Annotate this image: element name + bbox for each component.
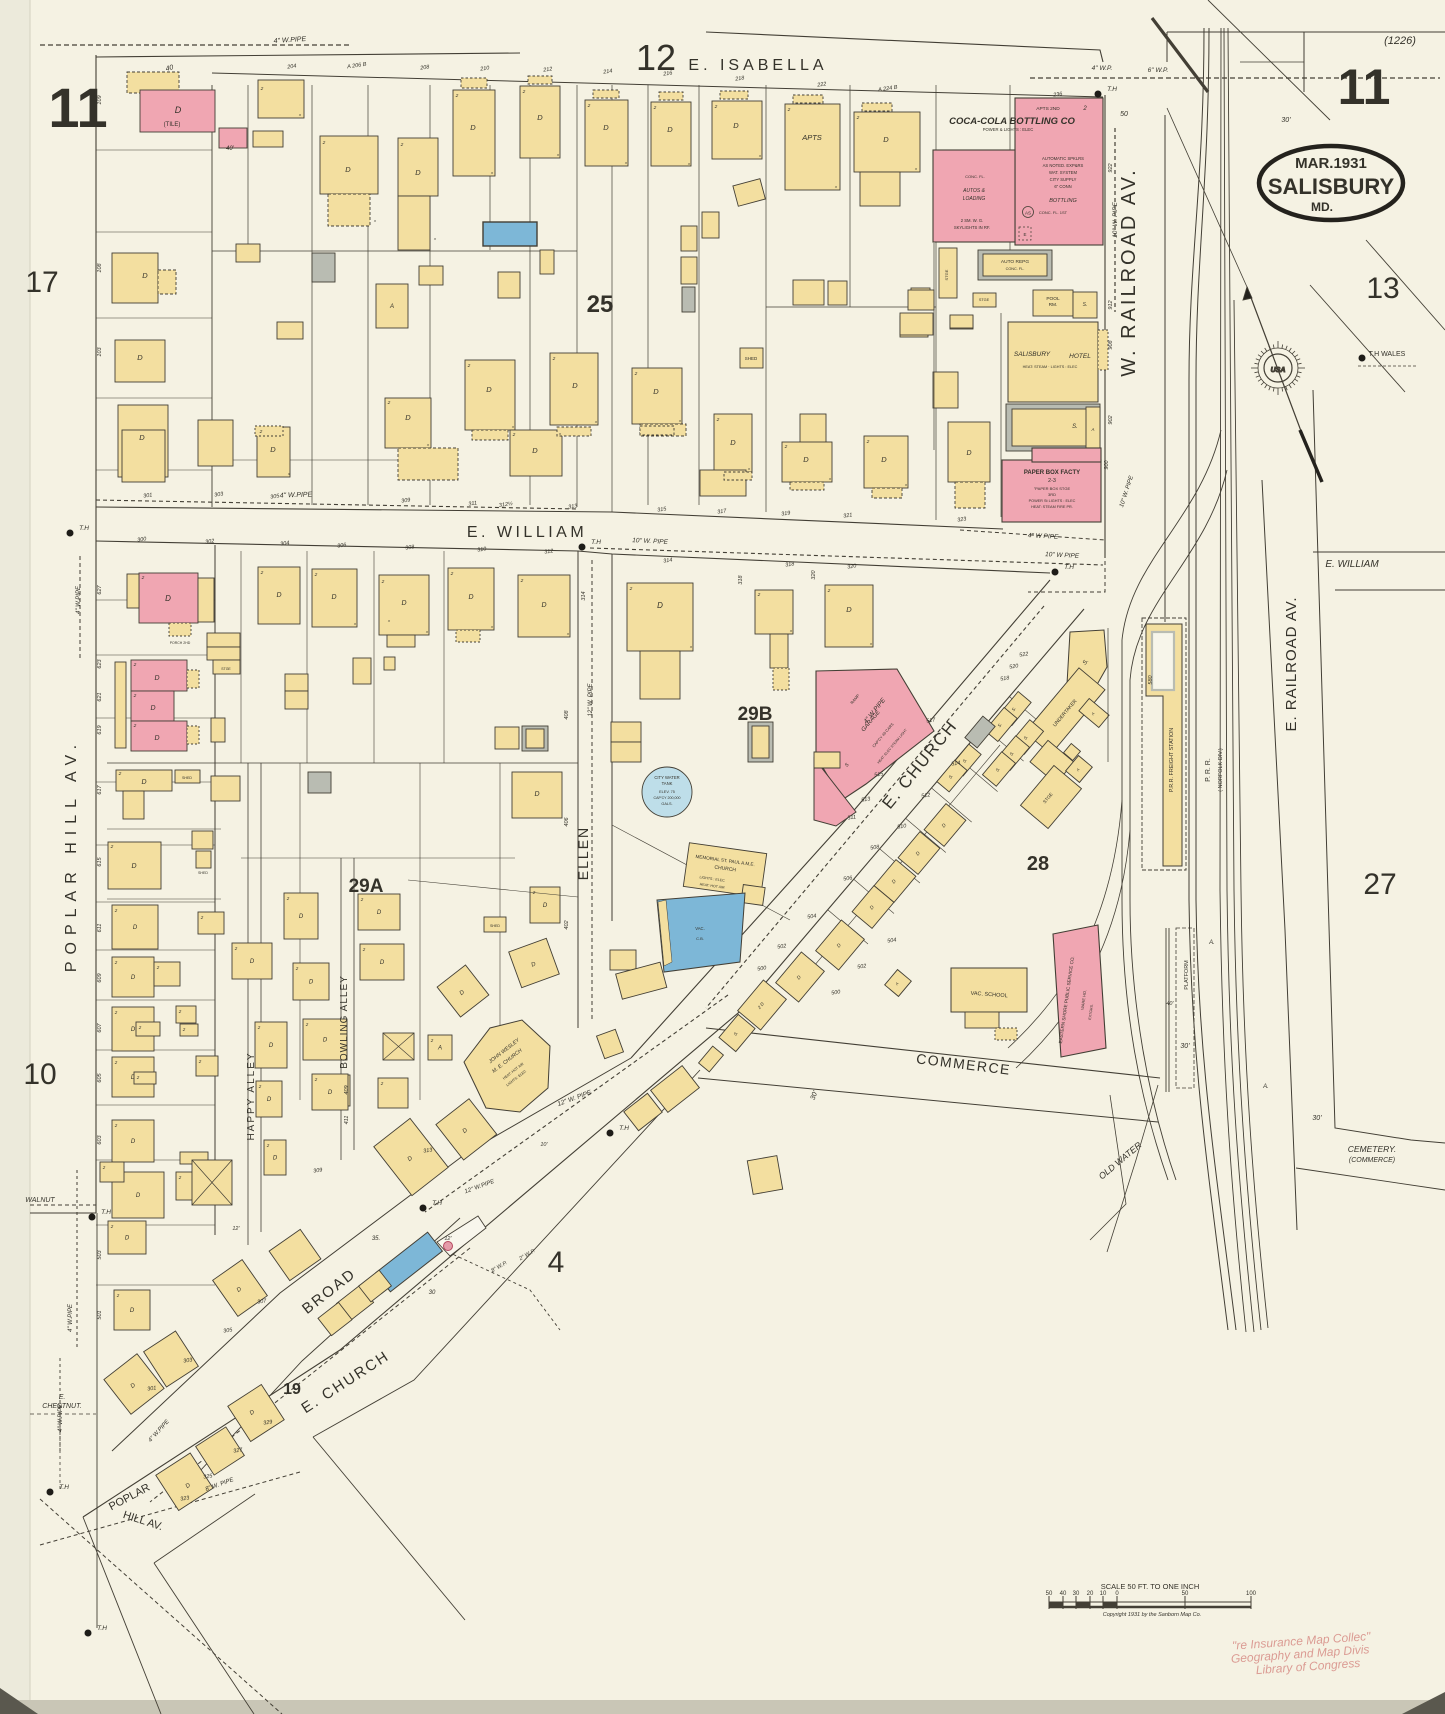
- svg-text:(1226): (1226): [1384, 35, 1416, 47]
- svg-text:T.H: T.H: [97, 1625, 107, 1632]
- svg-text:LOADING: LOADING: [963, 196, 986, 202]
- svg-text:2: 2: [266, 1143, 270, 1148]
- svg-text:411: 411: [344, 1116, 350, 1125]
- svg-text:D: D: [401, 600, 406, 607]
- svg-text:502: 502: [777, 943, 787, 950]
- svg-text:2: 2: [114, 1123, 118, 1128]
- svg-text:28: 28: [1027, 853, 1049, 875]
- svg-text:2: 2: [234, 946, 238, 951]
- svg-text:APTS: APTS: [801, 133, 822, 142]
- svg-text:A.: A.: [1262, 1084, 1269, 1090]
- svg-text:603: 603: [97, 1134, 103, 1144]
- svg-text:(TILE): (TILE): [164, 122, 181, 128]
- svg-text:504: 504: [887, 937, 897, 944]
- svg-text:2: 2: [314, 572, 318, 578]
- svg-text:309: 309: [313, 1167, 323, 1174]
- svg-text:30: 30: [1073, 1591, 1080, 1597]
- svg-text:E.: E.: [59, 1394, 66, 1401]
- svg-text:D: D: [250, 959, 255, 965]
- svg-text:2: 2: [716, 417, 720, 423]
- svg-text:T.H: T.H: [1064, 564, 1074, 571]
- svg-text:109: 109: [97, 95, 103, 104]
- svg-text:STGE: STGE: [944, 269, 949, 280]
- svg-text:580: 580: [1148, 674, 1154, 684]
- svg-text:POOL: POOL: [1046, 296, 1060, 302]
- svg-text:S.: S.: [1072, 424, 1078, 430]
- svg-text:2: 2: [1082, 106, 1087, 112]
- svg-text:406: 406: [564, 816, 570, 826]
- svg-text:12’: 12’: [232, 1226, 240, 1232]
- svg-text:2: 2: [381, 579, 385, 585]
- svg-text:A.: A.: [1208, 940, 1215, 946]
- svg-text:D: D: [328, 1090, 333, 1096]
- svg-text:D: D: [377, 910, 382, 916]
- svg-text:4" W.PIPE: 4" W.PIPE: [76, 585, 82, 614]
- svg-text:D: D: [730, 438, 736, 447]
- svg-text:SCALE 50 FT. TO ONE INCH: SCALE 50 FT. TO ONE INCH: [1101, 1582, 1200, 1591]
- svg-text:E: E: [1023, 232, 1026, 237]
- svg-text:318: 318: [738, 574, 744, 584]
- svg-text:50: 50: [1120, 111, 1128, 118]
- svg-text:HAPPY ALLEY: HAPPY ALLEY: [246, 1051, 257, 1140]
- svg-text:502: 502: [857, 963, 867, 970]
- svg-text:12" W. PIPE: 12" W. PIPE: [588, 683, 594, 717]
- svg-text:40’: 40’: [226, 146, 235, 152]
- svg-text:D: D: [125, 1236, 130, 1242]
- svg-text:408: 408: [564, 709, 570, 719]
- svg-text:4: 4: [548, 1246, 565, 1279]
- svg-text:6" W.P.: 6" W.P.: [1148, 67, 1169, 74]
- svg-text:2: 2: [116, 1293, 120, 1298]
- svg-text:POWER & LIGHTS : ELEC: POWER & LIGHTS : ELEC: [983, 127, 1034, 132]
- svg-text:908: 908: [1108, 339, 1114, 349]
- svg-text:617: 617: [97, 784, 103, 794]
- svg-text:50: 50: [1182, 1591, 1189, 1597]
- svg-text:2: 2: [430, 1038, 434, 1043]
- svg-text:D: D: [133, 925, 138, 931]
- svg-text:902: 902: [1108, 415, 1114, 424]
- svg-text:2: 2: [102, 1165, 106, 1170]
- svg-text:2: 2: [200, 915, 204, 920]
- svg-text:619: 619: [97, 725, 103, 734]
- svg-text:2 SM. W. G.: 2 SM. W. G.: [961, 218, 984, 223]
- svg-text:D: D: [966, 450, 971, 457]
- svg-text:T.H: T.H: [79, 525, 89, 532]
- svg-text:D: D: [846, 605, 852, 614]
- svg-text:D: D: [534, 791, 539, 798]
- svg-text:2: 2: [866, 439, 870, 445]
- svg-text:VAC.: VAC.: [695, 926, 704, 931]
- svg-text:D: D: [154, 735, 159, 742]
- svg-text:D: D: [468, 594, 473, 601]
- svg-text:2: 2: [450, 571, 454, 577]
- svg-text:D: D: [572, 381, 578, 390]
- svg-text:CONC. FL.: CONC. FL.: [1006, 267, 1025, 271]
- svg-text:CONC. FL. 1ST: CONC. FL. 1ST: [1039, 210, 1068, 215]
- svg-text:2: 2: [118, 771, 122, 777]
- svg-text:A: A: [389, 304, 394, 310]
- svg-text:SALISBURY: SALISBURY: [1268, 174, 1395, 199]
- svg-text:301: 301: [143, 492, 153, 499]
- svg-text:D: D: [267, 1097, 272, 1103]
- svg-text:COCA-COLA BOTTLING CO: COCA-COLA BOTTLING CO: [949, 116, 1075, 127]
- svg-text:P. R. R.: P. R. R.: [1205, 758, 1212, 782]
- svg-text:605: 605: [97, 1072, 103, 1082]
- svg-text:20: 20: [1087, 1591, 1094, 1597]
- svg-text:2-3: 2-3: [1048, 478, 1056, 484]
- svg-text:SHED: SHED: [745, 356, 758, 361]
- svg-text:HOTEL: HOTEL: [1069, 353, 1091, 360]
- svg-text:TANK: TANK: [662, 781, 673, 786]
- svg-text:RM.: RM.: [1049, 302, 1058, 308]
- svg-text:D: D: [276, 592, 281, 599]
- svg-text:29B: 29B: [738, 704, 773, 725]
- svg-text:D: D: [299, 914, 304, 920]
- svg-text:11: 11: [48, 76, 107, 139]
- svg-text:2: 2: [260, 570, 264, 576]
- svg-text:40: 40: [1060, 1591, 1067, 1597]
- svg-text:2: 2: [178, 1175, 182, 1180]
- svg-text:2: 2: [286, 896, 290, 901]
- svg-text:10’: 10’: [540, 1142, 548, 1148]
- svg-text:50: 50: [1046, 1591, 1053, 1597]
- svg-text:312: 312: [544, 548, 554, 555]
- svg-text:D: D: [142, 271, 148, 280]
- svg-text:2: 2: [856, 115, 860, 121]
- svg-text:311: 311: [468, 500, 478, 507]
- svg-text:30: 30: [429, 1290, 436, 1296]
- svg-text:2: 2: [362, 947, 366, 952]
- svg-text:623: 623: [97, 658, 103, 668]
- svg-text:511: 511: [847, 814, 857, 821]
- svg-text:2: 2: [305, 1022, 309, 1027]
- svg-text:2: 2: [634, 371, 638, 377]
- svg-text:2: 2: [114, 908, 118, 913]
- svg-text:POWER St LIGHTS : ELEC: POWER St LIGHTS : ELEC: [1029, 499, 1076, 503]
- svg-text:D: D: [380, 960, 385, 966]
- svg-text:40’: 40’: [1166, 1001, 1174, 1007]
- svg-text:D: D: [532, 446, 538, 455]
- svg-text:E. WILLIAM: E. WILLIAM: [1325, 559, 1379, 570]
- svg-text:APTS 2ND: APTS 2ND: [1036, 106, 1060, 112]
- svg-text:D: D: [470, 123, 476, 132]
- svg-text:D: D: [331, 594, 336, 601]
- svg-text:2: 2: [784, 444, 788, 450]
- svg-text:2: 2: [757, 592, 761, 598]
- svg-text:T.H WALES: T.H WALES: [1369, 351, 1406, 358]
- svg-text:D: D: [141, 779, 146, 786]
- svg-text:301: 301: [147, 1385, 157, 1392]
- svg-text:621: 621: [97, 692, 103, 701]
- svg-text:STGE: STGE: [221, 667, 231, 671]
- svg-text:2: 2: [110, 844, 114, 850]
- svg-text:2: 2: [141, 575, 145, 581]
- svg-text:2: 2: [380, 1081, 384, 1086]
- svg-text:D: D: [131, 975, 136, 981]
- svg-text:SKYLIGHTS IN RF.: SKYLIGHTS IN RF.: [954, 225, 990, 230]
- svg-text:314: 314: [581, 591, 587, 600]
- svg-text:D: D: [309, 980, 314, 986]
- svg-text:SHED: SHED: [182, 776, 192, 780]
- svg-text:T.H: T.H: [101, 1209, 111, 1216]
- svg-text:2: 2: [653, 105, 657, 111]
- svg-text:504: 504: [807, 913, 817, 920]
- svg-text:13: 13: [1366, 272, 1399, 305]
- svg-text:D: D: [131, 1139, 136, 1145]
- svg-text:12’: 12’: [444, 1236, 452, 1242]
- svg-text:2: 2: [136, 1075, 140, 1080]
- svg-text:501: 501: [97, 1310, 103, 1319]
- svg-text:D: D: [165, 594, 171, 603]
- svg-text:D: D: [139, 433, 145, 442]
- svg-text:D: D: [667, 125, 673, 134]
- svg-text:10: 10: [23, 1058, 56, 1091]
- svg-text:T.H: T.H: [591, 539, 601, 546]
- svg-text:409: 409: [344, 1085, 350, 1094]
- svg-text:2: 2: [156, 965, 160, 970]
- svg-text:D: D: [154, 675, 159, 682]
- svg-text:D: D: [486, 385, 492, 394]
- svg-text:321: 321: [843, 512, 853, 519]
- svg-text:SHED: SHED: [490, 924, 500, 928]
- svg-text:A: A: [1090, 427, 1094, 432]
- svg-text:2: 2: [455, 93, 459, 99]
- svg-text:2: 2: [133, 723, 137, 729]
- svg-text:(COMMERCE): (COMMERCE): [1349, 1157, 1395, 1164]
- svg-text:E. WILLIAM: E. WILLIAM: [467, 524, 587, 541]
- svg-text:19: 19: [283, 1381, 301, 1398]
- svg-text:ELEV. 75: ELEV. 75: [659, 790, 675, 794]
- svg-text:A: A: [437, 1046, 442, 1052]
- svg-text:514: 514: [951, 760, 961, 767]
- svg-text:100: 100: [1246, 1591, 1257, 1597]
- svg-text:4" W.PIPE: 4" W.PIPE: [68, 1303, 74, 1332]
- svg-text:D: D: [653, 387, 659, 396]
- svg-text:30’: 30’: [1180, 1043, 1190, 1050]
- svg-text:D: D: [537, 113, 543, 122]
- svg-text:611: 611: [97, 924, 103, 933]
- svg-text:D: D: [345, 165, 351, 174]
- svg-text:2: 2: [629, 586, 633, 592]
- svg-text:D: D: [130, 1308, 135, 1314]
- svg-text:302: 302: [205, 538, 215, 545]
- svg-text:35.: 35.: [372, 1236, 380, 1242]
- svg-text:PAPER BOX FACTY: PAPER BOX FACTY: [1024, 470, 1080, 476]
- svg-text:CITY WATER: CITY WATER: [654, 775, 679, 780]
- svg-text:T.H: T.H: [432, 1200, 442, 1207]
- svg-text:BOTTLING: BOTTLING: [1049, 198, 1077, 204]
- svg-text:2: 2: [522, 89, 526, 95]
- svg-text:C.B.: C.B.: [696, 936, 704, 941]
- svg-text:2: 2: [182, 1027, 186, 1032]
- svg-text:512: 512: [921, 792, 931, 799]
- svg-text:4" W.PIPE: 4" W.PIPE: [280, 491, 313, 499]
- svg-text:2: 2: [295, 966, 299, 971]
- svg-text:30’: 30’: [1312, 1115, 1322, 1122]
- svg-text:900: 900: [1104, 459, 1110, 469]
- svg-text:E. RAILROAD AV.: E. RAILROAD AV.: [1283, 596, 1300, 731]
- svg-text:314: 314: [663, 557, 673, 564]
- svg-text:6" CONN: 6" CONN: [1054, 184, 1071, 189]
- svg-text:AUTOMATIC SPKLRS: AUTOMATIC SPKLRS: [1042, 156, 1084, 161]
- svg-text:2: 2: [258, 1084, 262, 1089]
- svg-text:HEAT: STEAM FIRE PR.: HEAT: STEAM FIRE PR.: [1031, 505, 1073, 509]
- svg-text:2: 2: [387, 400, 391, 406]
- svg-text:D: D: [137, 353, 143, 362]
- svg-text:319: 319: [781, 510, 791, 517]
- svg-text:D: D: [541, 602, 546, 609]
- svg-text:GALS.: GALS.: [661, 802, 672, 806]
- svg-text:CONC. FL.: CONC. FL.: [965, 174, 985, 179]
- svg-text:D: D: [269, 1043, 274, 1049]
- svg-text:2: 2: [512, 432, 516, 438]
- svg-text:3RD: 3RD: [1048, 492, 1056, 497]
- svg-text:MAR.1931: MAR.1931: [1295, 155, 1367, 172]
- svg-text:PORCH 2HD: PORCH 2HD: [170, 641, 191, 645]
- svg-text:609: 609: [97, 973, 103, 982]
- svg-text:( NORFOLK DIV.): ( NORFOLK DIV.): [1218, 748, 1224, 792]
- svg-text:D: D: [323, 1038, 328, 1044]
- svg-text:10" W. PIPE: 10" W. PIPE: [1112, 202, 1119, 238]
- svg-text:D: D: [270, 445, 276, 454]
- svg-text:2: 2: [314, 1077, 318, 1082]
- svg-text:912: 912: [1108, 300, 1114, 309]
- svg-text:2: 2: [552, 356, 556, 362]
- svg-text:329: 329: [263, 1419, 273, 1426]
- svg-text:2: 2: [260, 86, 264, 92]
- svg-text:25: 25: [587, 291, 614, 318]
- svg-text:17: 17: [25, 266, 58, 299]
- svg-text:304: 304: [280, 540, 290, 547]
- svg-text:D: D: [657, 601, 663, 610]
- svg-text:4" W.P.: 4" W.P.: [1092, 65, 1113, 72]
- svg-text:D: D: [415, 168, 421, 177]
- svg-text:AUTOS &: AUTOS &: [962, 188, 986, 194]
- svg-text:W. RAILROAD AV.: W. RAILROAD AV.: [1118, 167, 1140, 377]
- svg-text:SHED: SHED: [198, 871, 208, 875]
- svg-text:627: 627: [97, 584, 103, 594]
- svg-text:2: 2: [133, 693, 137, 699]
- svg-text:D: D: [803, 455, 809, 464]
- svg-text:2: 2: [322, 140, 326, 146]
- svg-text:D: D: [883, 135, 889, 144]
- svg-text:2: 2: [827, 588, 831, 594]
- svg-text:27: 27: [1363, 868, 1396, 901]
- svg-text:D: D: [175, 105, 182, 115]
- svg-text:2: 2: [257, 1025, 261, 1030]
- svg-text:HEAT: STEAM · LIGHTS : ELEC: HEAT: STEAM · LIGHTS : ELEC: [1023, 365, 1078, 369]
- svg-text:SALISBURY: SALISBURY: [1014, 351, 1051, 358]
- svg-text:T.H: T.H: [1107, 86, 1117, 93]
- svg-text:10: 10: [1100, 1591, 1107, 1597]
- svg-text:MD.: MD.: [1311, 200, 1333, 214]
- svg-text:2: 2: [467, 363, 471, 369]
- svg-text:108: 108: [97, 262, 103, 272]
- svg-text:615: 615: [97, 856, 103, 866]
- svg-text:2: 2: [259, 429, 263, 435]
- svg-text:2: 2: [110, 1224, 114, 1229]
- svg-text:103: 103: [97, 346, 103, 356]
- svg-text:402: 402: [564, 920, 570, 929]
- svg-text:D: D: [136, 1193, 141, 1199]
- svg-text:D: D: [150, 705, 155, 712]
- svg-text:AUTO REPG: AUTO REPG: [1001, 259, 1029, 265]
- svg-text:522: 522: [1019, 651, 1029, 658]
- svg-text:AS: AS: [1025, 211, 1031, 216]
- svg-text:D: D: [881, 455, 887, 464]
- svg-text:D: D: [733, 121, 739, 130]
- svg-text:2: 2: [114, 960, 118, 965]
- svg-text:WAT. SYSTEM: WAT. SYSTEM: [1049, 170, 1077, 175]
- svg-text:2: 2: [400, 142, 404, 148]
- svg-text:E. ISABELLA: E. ISABELLA: [688, 57, 827, 74]
- svg-text:2: 2: [360, 897, 364, 902]
- svg-text:320: 320: [811, 569, 817, 579]
- svg-text:D: D: [543, 903, 548, 909]
- svg-text:S.: S.: [1083, 302, 1088, 308]
- svg-text:ELLEN: ELLEN: [575, 826, 591, 880]
- svg-text:STGE: STGE: [979, 298, 990, 302]
- svg-text:2: 2: [133, 662, 137, 668]
- svg-text:607: 607: [97, 1022, 103, 1032]
- svg-text:T.H: T.H: [619, 1125, 629, 1132]
- svg-text:Copyright 1931 by the Sanborn: Copyright 1931 by the Sanborn Map Co.: [1103, 1612, 1201, 1618]
- svg-text:POPLAR HILL AV.: POPLAR HILL AV.: [63, 738, 80, 972]
- svg-text:CAP'CY 200,000: CAP'CY 200,000: [654, 796, 681, 800]
- svg-text:D: D: [131, 1027, 136, 1033]
- svg-text:D: D: [603, 123, 609, 132]
- svg-text:2: 2: [114, 1060, 118, 1065]
- svg-text:2: 2: [520, 578, 524, 584]
- svg-text:30’: 30’: [1281, 117, 1291, 124]
- svg-text:D: D: [405, 413, 411, 422]
- svg-text:T.H: T.H: [59, 1484, 69, 1491]
- svg-text:503: 503: [97, 1249, 103, 1259]
- svg-text:309: 309: [401, 497, 411, 504]
- svg-text:29A: 29A: [349, 876, 384, 897]
- svg-text:D: D: [131, 863, 136, 870]
- svg-text:CEMETERY.: CEMETERY.: [1348, 1144, 1397, 1154]
- svg-text:P.R.R. FREIGHT STATION: P.R.R. FREIGHT STATION: [1169, 728, 1175, 792]
- svg-text:AS NOTED. EXP&RS: AS NOTED. EXP&RS: [1043, 163, 1084, 168]
- svg-text:11: 11: [1338, 59, 1391, 115]
- svg-text:BOWLING ALLEY: BOWLING ALLEY: [339, 975, 350, 1069]
- svg-text:2: 2: [714, 104, 718, 110]
- svg-text:WALNUT: WALNUT: [25, 1197, 55, 1204]
- svg-text:D: D: [273, 1156, 278, 1162]
- svg-text:2: 2: [587, 103, 591, 109]
- svg-text:2: 2: [178, 1009, 182, 1014]
- svg-text:"PAPER BOX STGE: "PAPER BOX STGE: [1034, 486, 1071, 491]
- svg-text:2: 2: [198, 1059, 202, 1064]
- svg-text:CITY SUPPLY: CITY SUPPLY: [1050, 177, 1077, 182]
- svg-text:4" W.PIPE: 4" W.PIPE: [58, 1403, 64, 1432]
- svg-text:2: 2: [114, 1010, 118, 1015]
- svg-text:2: 2: [138, 1025, 142, 1030]
- svg-text:PLATFORM: PLATFORM: [1184, 960, 1190, 990]
- svg-text:2: 2: [787, 107, 791, 113]
- svg-text:922: 922: [1108, 163, 1114, 172]
